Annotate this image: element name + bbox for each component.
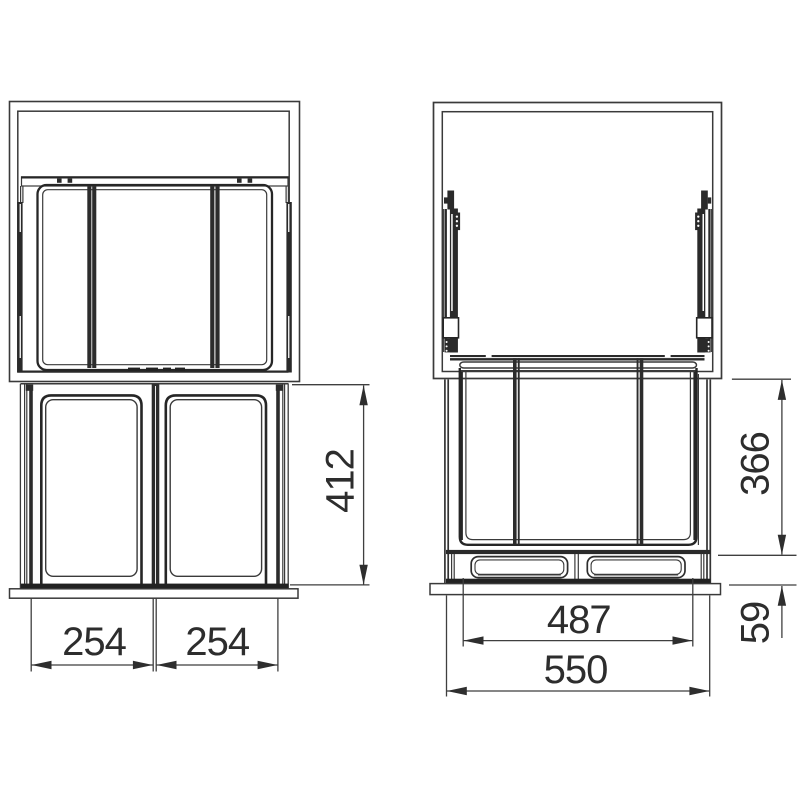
- svg-text:59: 59: [733, 602, 777, 645]
- svg-text:412: 412: [318, 449, 362, 513]
- svg-text:550: 550: [544, 648, 608, 692]
- svg-text:487: 487: [547, 598, 611, 642]
- svg-text:254: 254: [185, 620, 249, 664]
- svg-text:366: 366: [733, 432, 777, 496]
- svg-text:254: 254: [62, 620, 126, 664]
